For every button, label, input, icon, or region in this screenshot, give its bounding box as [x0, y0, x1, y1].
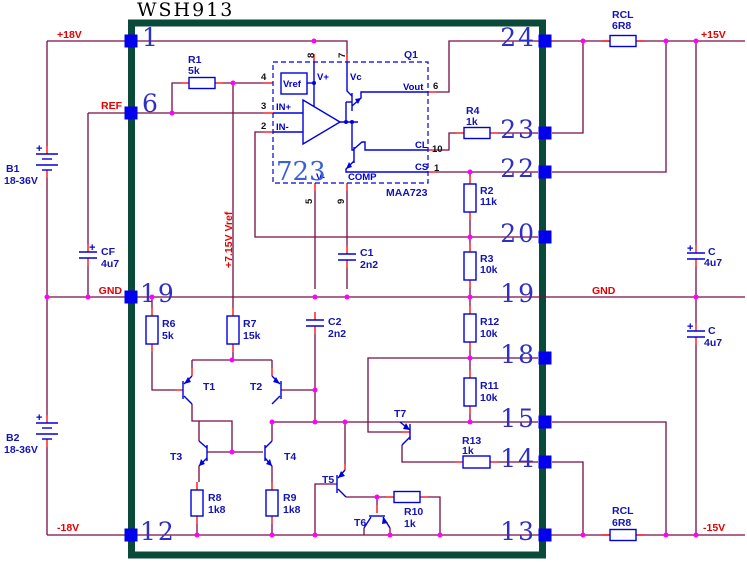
cf-plus: + — [89, 242, 95, 254]
value-C2: 2n2 — [328, 328, 346, 340]
net-plus18: +18V — [57, 29, 82, 41]
label-C-bottom: C — [708, 325, 716, 337]
value-R10: 1k — [404, 518, 416, 530]
value-B1: 18-36V — [4, 175, 38, 187]
label-C1: C1 — [360, 247, 374, 259]
pin-square-14 — [539, 456, 552, 469]
ic-label-cl: CL — [415, 140, 428, 151]
value-RCL-bottom: 6R8 — [612, 517, 631, 529]
pin-square-1 — [125, 35, 138, 48]
ic-label-vc: Vc — [350, 72, 362, 83]
pin-square-6 — [125, 107, 138, 120]
label-T7: T7 — [394, 408, 406, 420]
pin-number-19-right: 19 — [500, 279, 536, 308]
net-vref-rail: +7.15V Vref — [223, 211, 235, 268]
value-R13: 1k — [462, 445, 474, 457]
label-R11: R11 — [480, 380, 499, 392]
ic-big-label: 723 — [276, 157, 326, 187]
pin-number-13: 13 — [500, 517, 536, 546]
pin-square-20 — [539, 231, 552, 244]
ic-pin-10: 10 — [432, 144, 443, 155]
value-C-bottom: 4u7 — [704, 337, 722, 349]
value-R8: 1k8 — [208, 504, 226, 516]
resistor-R8 — [191, 490, 203, 516]
ic-label-vout: Vout — [403, 82, 424, 93]
value-R4: 1k — [466, 116, 478, 128]
ic-designator: Q1 — [404, 49, 418, 61]
ic-pin-3: 3 — [261, 101, 266, 112]
value-C-top: 4u7 — [704, 257, 722, 269]
resistor-R2 — [464, 184, 476, 212]
pin-number-20: 20 — [500, 219, 536, 248]
pin-square-19-left — [125, 291, 138, 304]
resistor-R6 — [146, 316, 158, 344]
pin-number-14: 14 — [500, 444, 536, 473]
resistor-R11 — [464, 378, 476, 406]
resistor-R7 — [227, 316, 239, 344]
c-bottom-plus: + — [687, 321, 693, 333]
ic-pin-6: 6 — [433, 81, 438, 92]
value-R1: 5k — [188, 65, 200, 77]
resistor-R1 — [189, 78, 215, 89]
value-R2: 11k — [480, 196, 497, 208]
label-T4: T4 — [284, 451, 296, 463]
value-CF: 4u7 — [101, 258, 119, 270]
label-RCL-bottom: RCL — [612, 505, 634, 517]
pin-number-15: 15 — [500, 404, 536, 433]
resistor-R10 — [394, 492, 420, 503]
b1-plus: + — [36, 143, 42, 155]
pin-number-6: 6 — [142, 89, 160, 118]
pin-square-12 — [125, 529, 138, 542]
ic-pin-5: 5 — [304, 198, 315, 204]
label-R10: R10 — [404, 506, 423, 518]
label-C2: C2 — [328, 316, 342, 328]
resistor-RCL-top — [610, 36, 636, 47]
pin-number-24: 24 — [500, 23, 536, 52]
pin-square-24 — [539, 35, 552, 48]
vref-label: Vref — [283, 79, 302, 90]
label-R6: R6 — [162, 318, 176, 330]
label-R9: R9 — [283, 492, 297, 504]
opamp-triangle — [303, 100, 340, 144]
b2-plus: + — [36, 412, 42, 424]
resistors: R1 5k R2 11k R3 10k R4 1k R6 5k R7 15k R… — [146, 9, 636, 541]
value-C1: 2n2 — [360, 259, 378, 271]
value-RCL-top: 6R8 — [612, 20, 631, 32]
resistor-R3 — [464, 252, 476, 280]
pin-number-23: 23 — [500, 115, 536, 144]
c-top-plus: + — [687, 243, 693, 255]
label-R7: R7 — [243, 318, 257, 330]
value-R6: 5k — [162, 330, 174, 342]
label-T1: T1 — [203, 381, 215, 393]
net-minus18: -18V — [57, 522, 79, 534]
net-minus15: -15V — [703, 522, 725, 534]
pin-number-12: 12 — [140, 517, 176, 546]
label-B2: B2 — [6, 432, 20, 444]
pin-square-15 — [539, 416, 552, 429]
ic-pin-7: 7 — [337, 53, 348, 58]
ic-pin-2: 2 — [261, 121, 266, 132]
pin-number-22: 22 — [500, 154, 536, 183]
pin-square-22 — [539, 166, 552, 179]
ic-pin-9: 9 — [336, 199, 347, 204]
value-R3: 10k — [480, 264, 498, 276]
pin-number-1: 1 — [142, 23, 160, 52]
value-R11: 10k — [480, 392, 498, 404]
ic-maa723: Vref V+ Vc IN+ IN- Vout CL CS V- COMP 8 … — [261, 49, 443, 204]
label-T2: T2 — [250, 381, 262, 393]
ic-label-comp: COMP — [348, 172, 377, 183]
net-gnd-left: GND — [99, 285, 123, 297]
resistor-R12 — [464, 314, 476, 342]
ic-label-cs: CS — [415, 162, 428, 173]
label-R12: R12 — [480, 316, 499, 328]
ic-pin-1: 1 — [434, 163, 440, 174]
net-gnd-right: GND — [592, 285, 616, 297]
value-R9: 1k8 — [283, 504, 301, 516]
module-title: WSH913 — [137, 0, 234, 21]
ic-pin-8: 8 — [306, 53, 317, 58]
net-ref: REF — [101, 100, 123, 112]
schematic-canvas: WSH913 — [0, 0, 747, 567]
label-T5: T5 — [322, 474, 334, 486]
resistor-R13 — [463, 456, 490, 468]
value-B2: 18-36V — [4, 444, 38, 456]
value-R7: 15k — [243, 330, 261, 342]
resistor-R9 — [266, 490, 278, 516]
resistor-R4 — [464, 128, 490, 139]
ic-label-vplus: V+ — [317, 72, 329, 83]
label-T3: T3 — [170, 451, 182, 463]
label-B1: B1 — [6, 163, 20, 175]
ic-label-inp: IN+ — [276, 102, 292, 113]
label-R8: R8 — [208, 492, 222, 504]
resistor-RCL-bottom — [610, 530, 636, 541]
ic-label-inn: IN- — [276, 122, 289, 133]
value-R12: 10k — [480, 328, 498, 340]
pin-square-18 — [539, 352, 552, 365]
pin-number-19-left: 19 — [140, 279, 176, 308]
pin-number-18: 18 — [500, 340, 536, 369]
ic-part-number: MAA723 — [386, 187, 428, 199]
label-T6: T6 — [354, 517, 366, 529]
pin-square-13 — [539, 529, 552, 542]
schematic-page: WSH913 — [0, 0, 747, 567]
label-CF: CF — [101, 246, 116, 258]
pin-square-23 — [539, 127, 552, 140]
ic-pin-4: 4 — [261, 72, 267, 83]
net-plus15: +15V — [701, 29, 726, 41]
batteries: + B1 18-36V + B2 18-36V — [4, 143, 58, 456]
